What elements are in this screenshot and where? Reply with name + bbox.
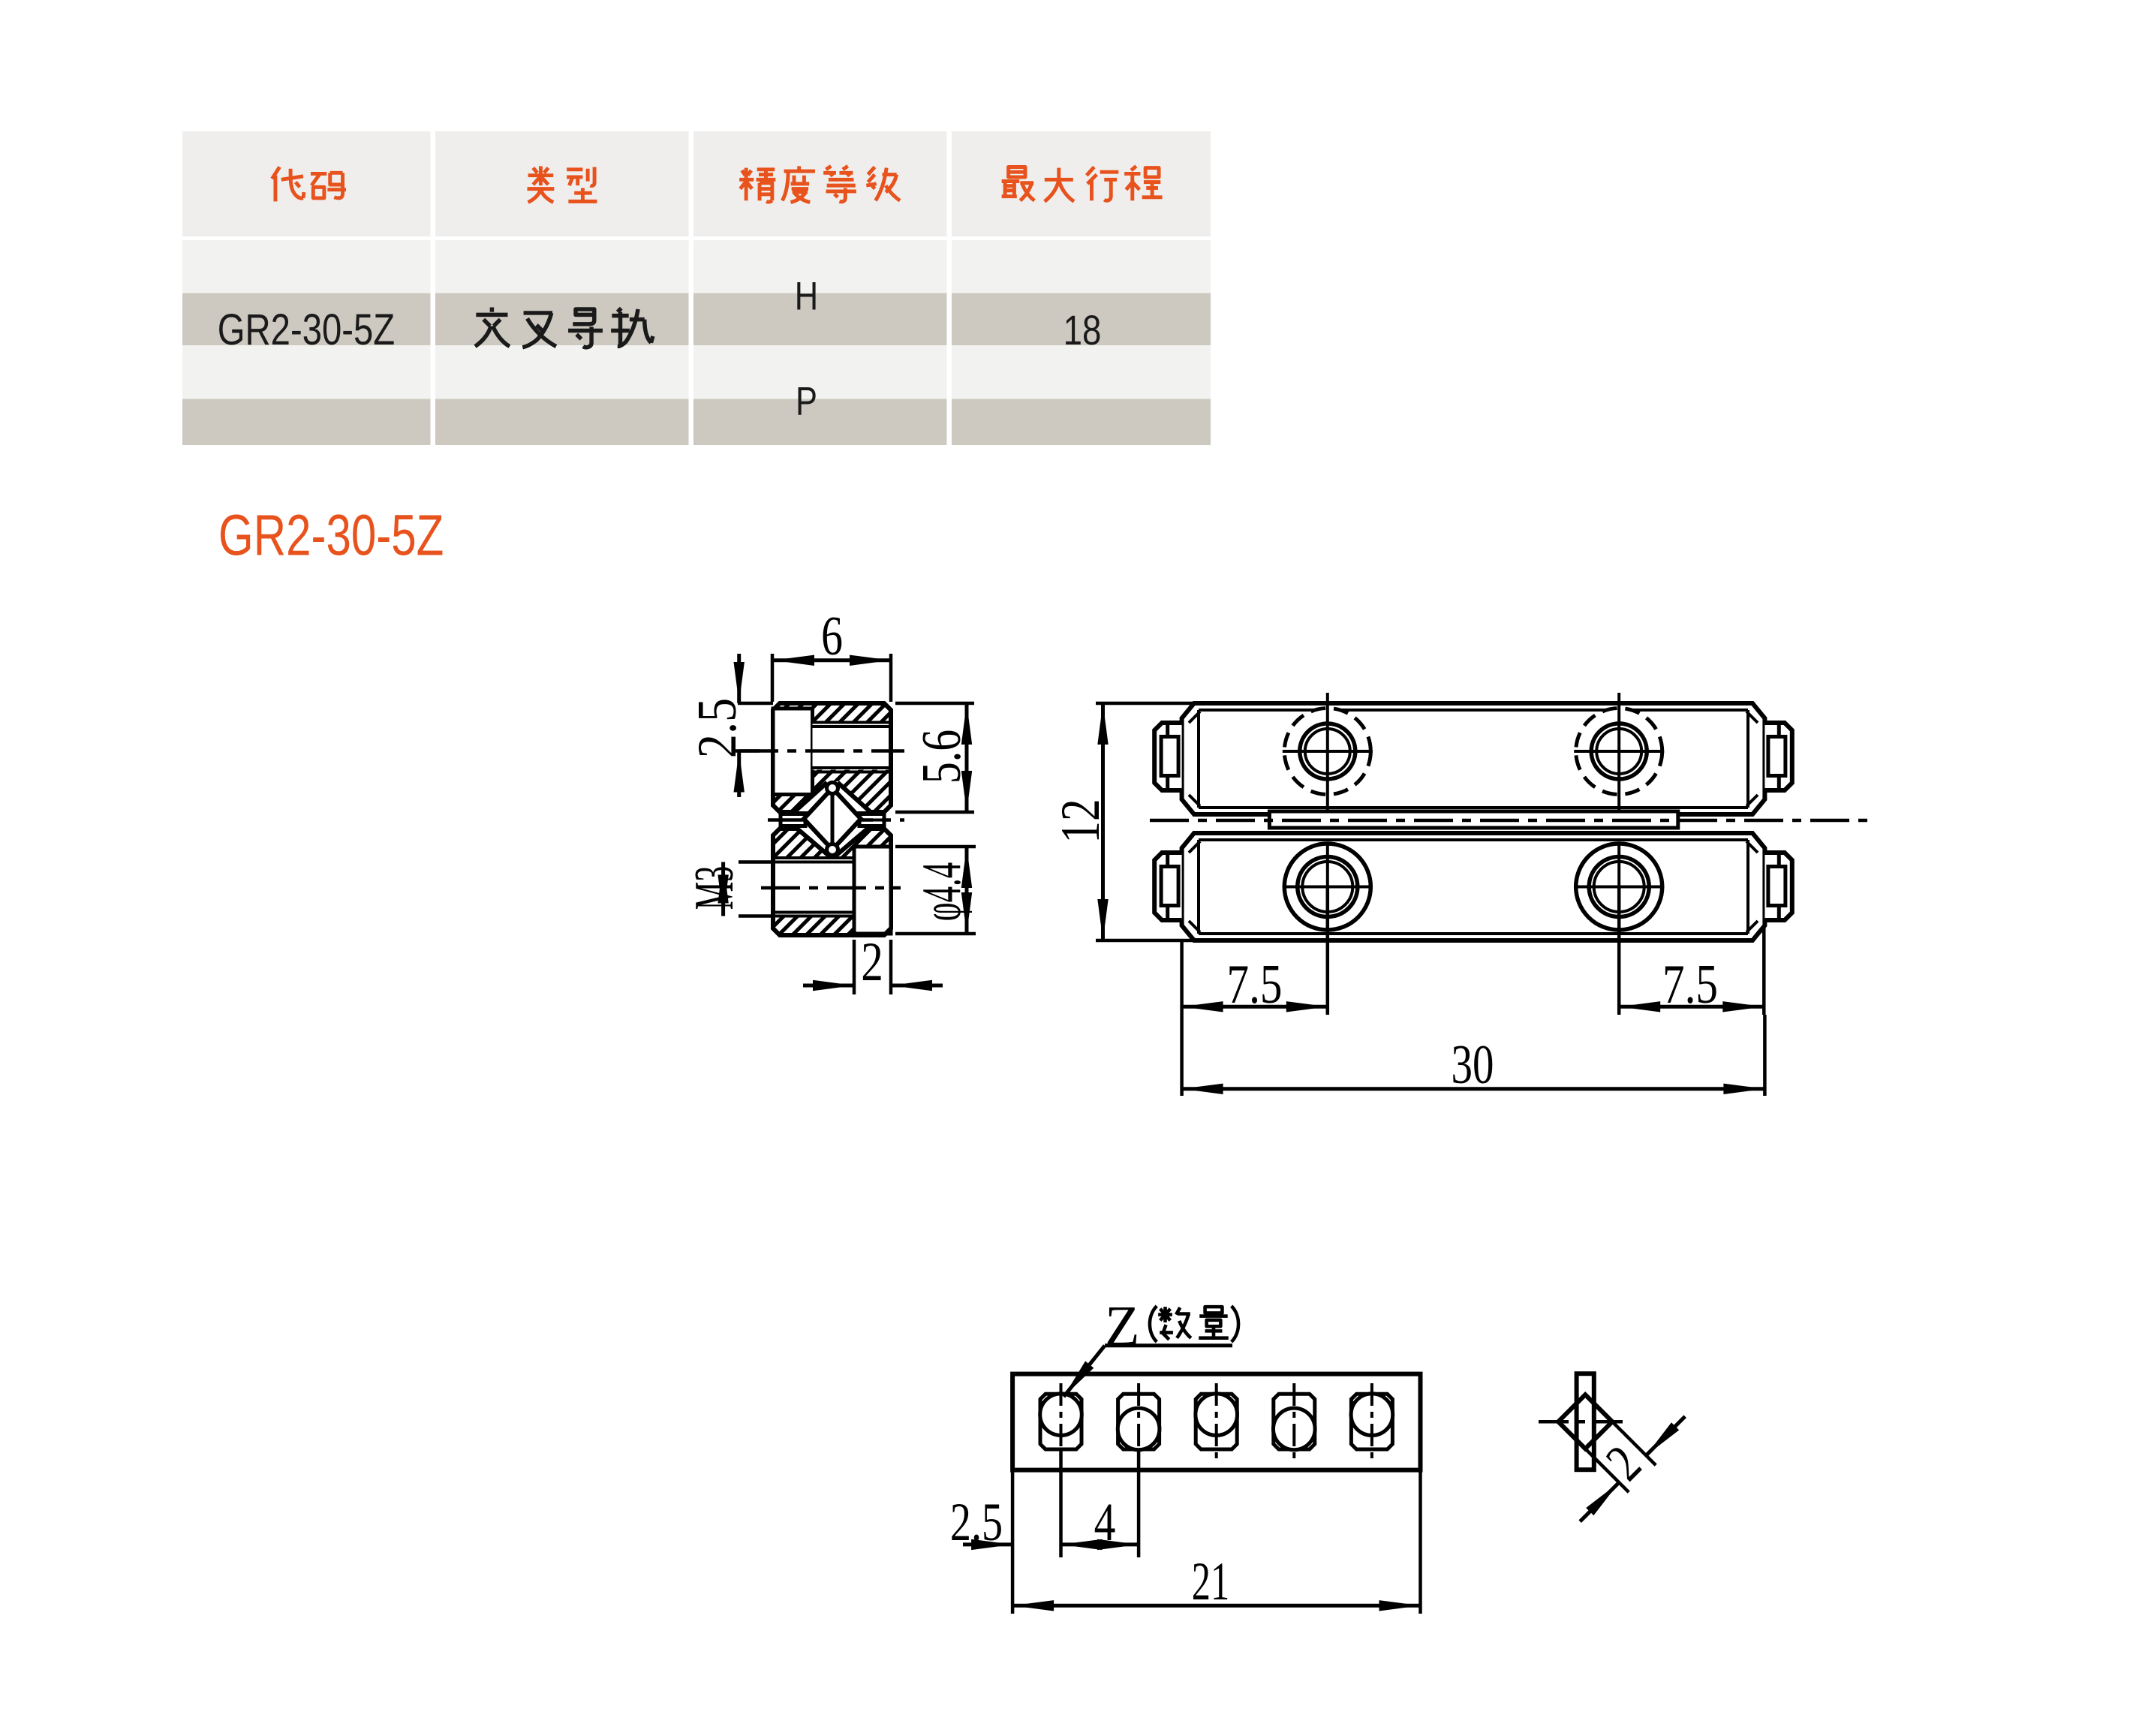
svg-text:7.5: 7.5 (1227, 954, 1283, 1015)
svg-text:Z: Z (1105, 1295, 1139, 1358)
svg-text:5.6: 5.6 (911, 730, 972, 784)
svg-text:M3: M3 (684, 866, 745, 910)
svg-text:φ4.4: φ4.4 (911, 862, 973, 921)
svg-text:2.5: 2.5 (687, 698, 748, 758)
svg-text:30: 30 (1452, 1034, 1494, 1096)
svg-text:2.5: 2.5 (950, 1491, 1003, 1551)
svg-text:4: 4 (1094, 1493, 1116, 1553)
svg-text:6: 6 (821, 606, 843, 666)
svg-text:2: 2 (861, 931, 883, 993)
svg-text:12: 12 (1050, 799, 1112, 843)
svg-text:H: H (795, 274, 818, 318)
svg-text:18: 18 (1063, 307, 1102, 354)
svg-text:GR2-30-5Z: GR2-30-5Z (218, 502, 444, 567)
svg-text:7.5: 7.5 (1662, 954, 1718, 1015)
svg-text:GR2-30-5Z: GR2-30-5Z (218, 305, 395, 354)
svg-text:21: 21 (1192, 1552, 1229, 1611)
svg-text:P: P (796, 379, 817, 423)
